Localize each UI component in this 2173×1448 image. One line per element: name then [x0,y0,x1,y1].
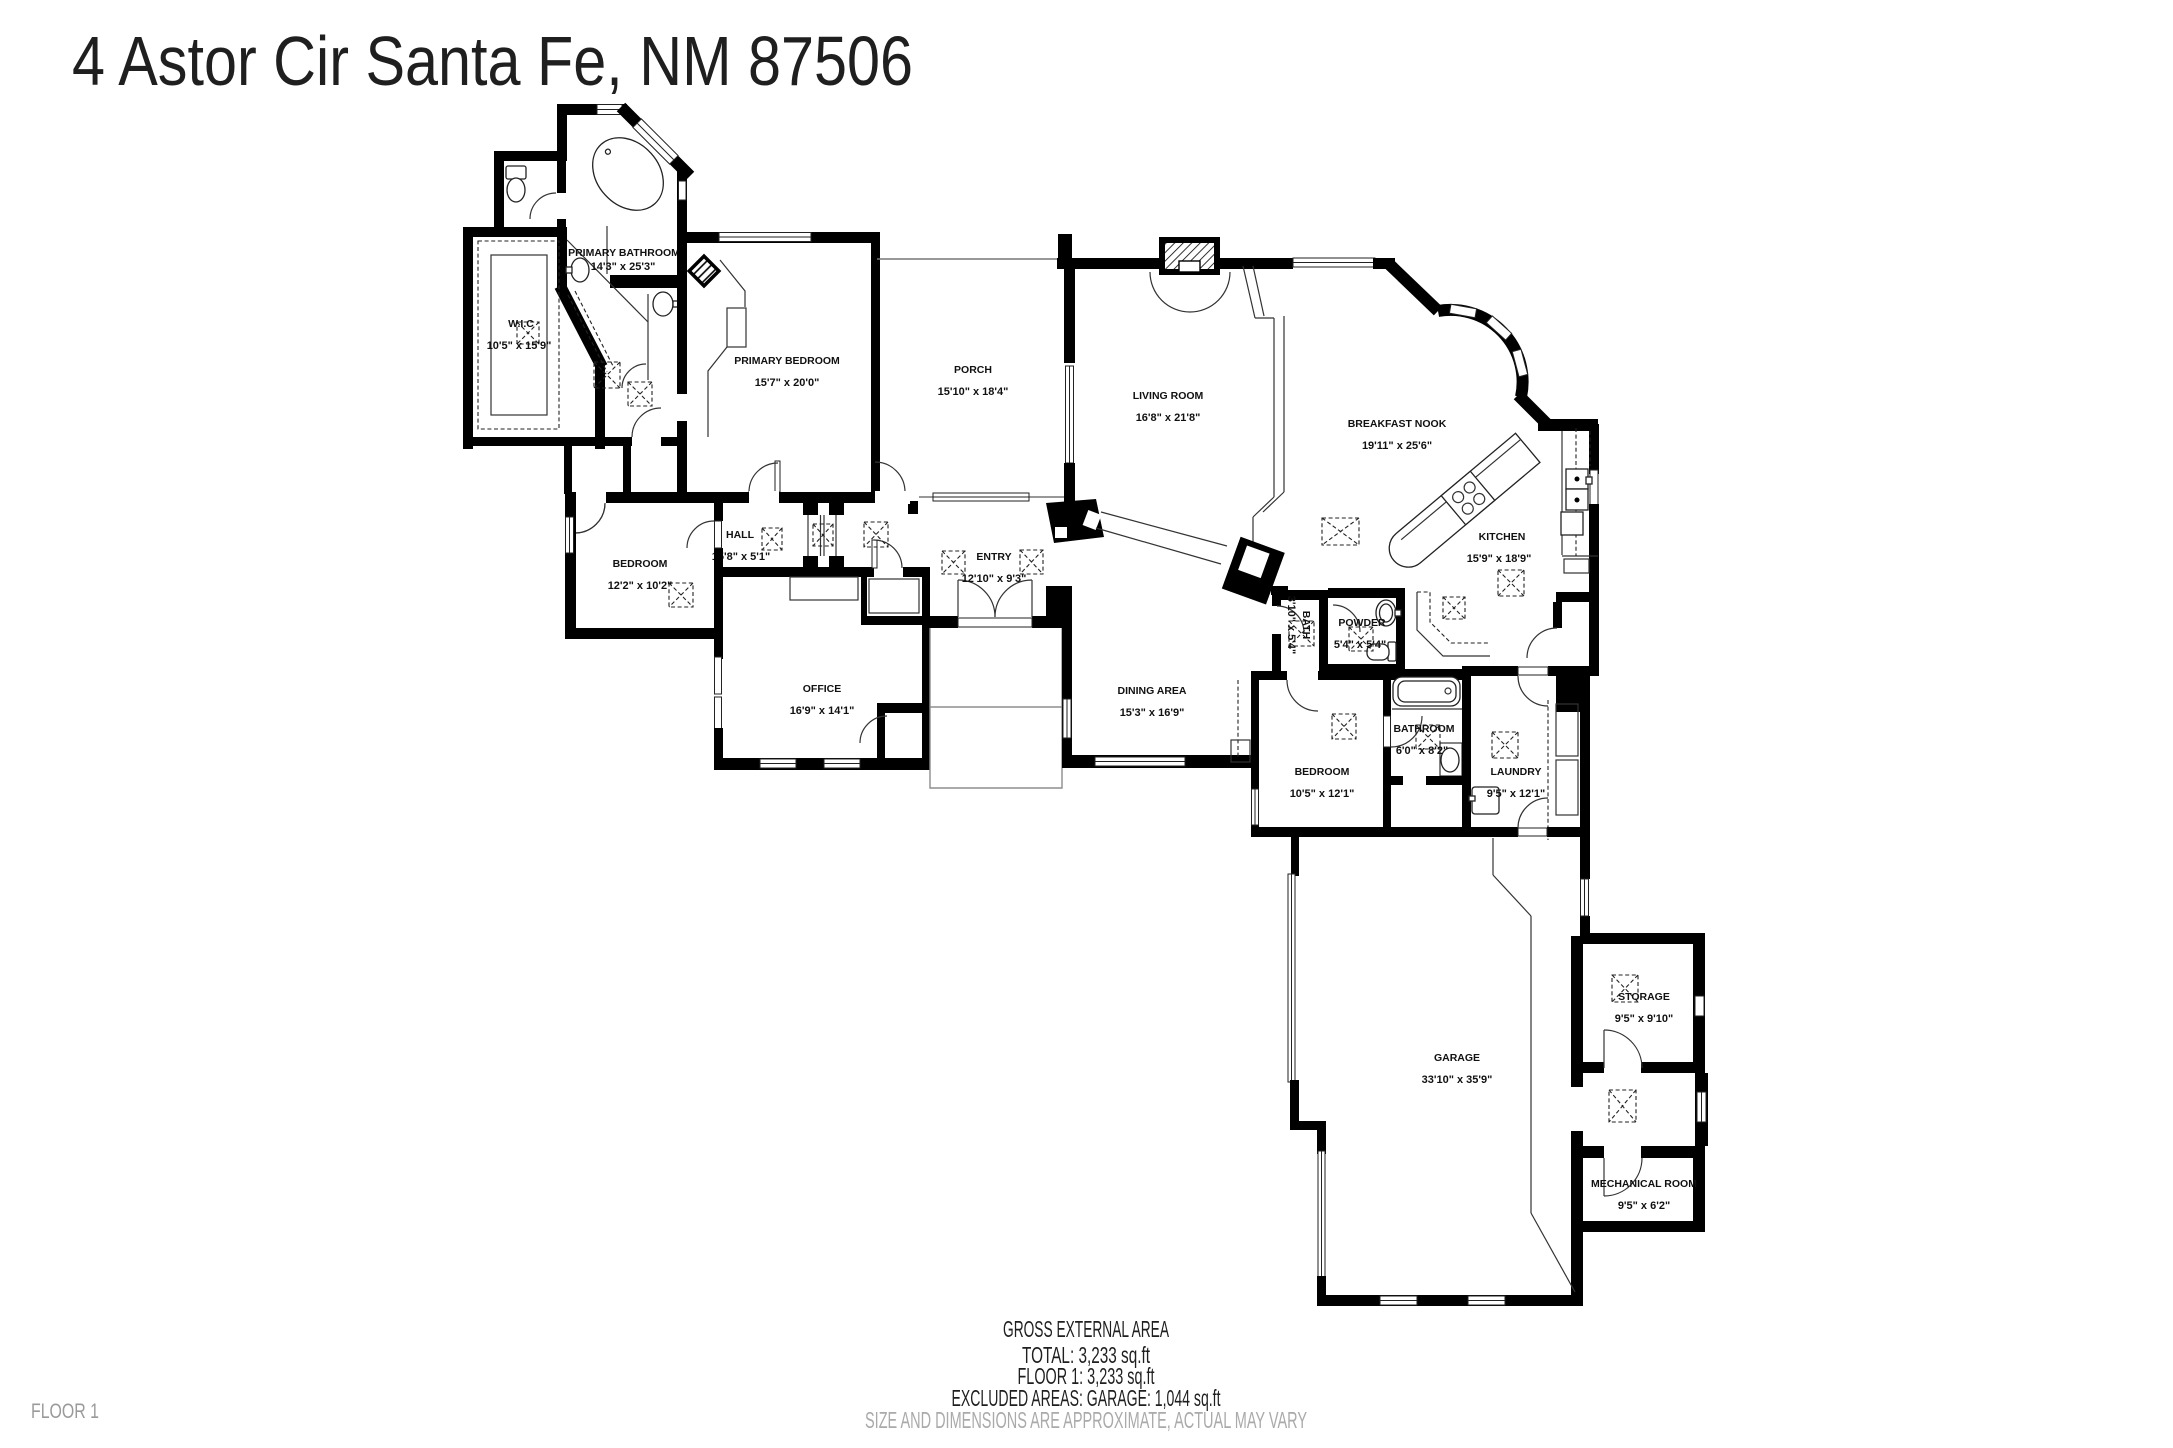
svg-text:DINING AREA: DINING AREA [1117,685,1186,697]
svg-text:PRIMARY BATHROOM: PRIMARY BATHROOM [568,247,680,259]
svg-text:STORAGE: STORAGE [1618,991,1670,1003]
svg-text:12'10" x 9'3": 12'10" x 9'3" [962,573,1027,585]
svg-text:5'4" x 5'4": 5'4" x 5'4" [1334,639,1386,651]
svg-text:9'5" x 9'10": 9'5" x 9'10" [1615,1013,1673,1025]
svg-text:15'3" x 16'9": 15'3" x 16'9" [1120,707,1185,719]
svg-text:9'5" x 12'1": 9'5" x 12'1" [1487,788,1545,800]
svg-text:MECHANICAL ROOM: MECHANICAL ROOM [1591,1178,1697,1190]
svg-text:FLOOR 1: FLOOR 1 [31,1400,99,1423]
svg-text:14'3" x 25'3": 14'3" x 25'3" [591,261,656,273]
svg-text:BEDROOM: BEDROOM [1295,766,1350,778]
svg-text:GARAGE: GARAGE [1434,1052,1480,1064]
svg-text:6'0" x 8'2": 6'0" x 8'2" [1396,745,1448,757]
svg-text:BATHROOM: BATHROOM [1393,723,1454,735]
svg-text:ENTRY: ENTRY [976,551,1011,563]
svg-text:4 Astor Cir Santa Fe, NM 87506: 4 Astor Cir Santa Fe, NM 87506 [72,22,913,100]
svg-text:15'9" x 18'9": 15'9" x 18'9" [1467,553,1532,565]
svg-text:9'5" x 6'2": 9'5" x 6'2" [1618,1200,1670,1212]
svg-text:BEDROOM: BEDROOM [613,558,668,570]
svg-text:3'10" x 5'4": 3'10" x 5'4" [1285,596,1297,654]
svg-text:PORCH: PORCH [954,364,992,376]
svg-text:PRIMARY BEDROOM: PRIMARY BEDROOM [734,355,840,367]
svg-text:33'10" x 35'9": 33'10" x 35'9" [1422,1074,1493,1086]
svg-text:LAUNDRY: LAUNDRY [1491,766,1542,778]
svg-text:W.I.C: W.I.C [508,318,534,330]
svg-text:HALL: HALL [726,529,755,541]
svg-text:10'5" x 15'9": 10'5" x 15'9" [487,340,552,352]
svg-text:16'8" x 21'8": 16'8" x 21'8" [1136,412,1201,424]
svg-text:BATH: BATH [1300,611,1312,639]
svg-text:16'9" x 14'1": 16'9" x 14'1" [790,705,855,717]
svg-text:GROSS EXTERNAL AREA: GROSS EXTERNAL AREA [1003,1316,1169,1342]
svg-text:15'7" x 20'0": 15'7" x 20'0" [755,377,820,389]
svg-text:SIZE AND DIMENSIONS ARE APPROX: SIZE AND DIMENSIONS ARE APPROXIMATE, ACT… [865,1407,1307,1433]
svg-text:LIVING ROOM: LIVING ROOM [1133,390,1204,402]
svg-text:KITCHEN: KITCHEN [1479,531,1526,543]
svg-text:12'2" x 10'2": 12'2" x 10'2" [608,580,673,592]
svg-text:OFFICE: OFFICE [803,683,842,695]
svg-text:BREAKFAST NOOK: BREAKFAST NOOK [1348,418,1447,430]
svg-text:15'10" x 18'4": 15'10" x 18'4" [938,386,1009,398]
svg-text:19'11" x 25'6": 19'11" x 25'6" [1362,440,1432,452]
svg-text:10'5" x 12'1": 10'5" x 12'1" [1290,788,1355,800]
svg-text:POWDER: POWDER [1338,617,1386,629]
